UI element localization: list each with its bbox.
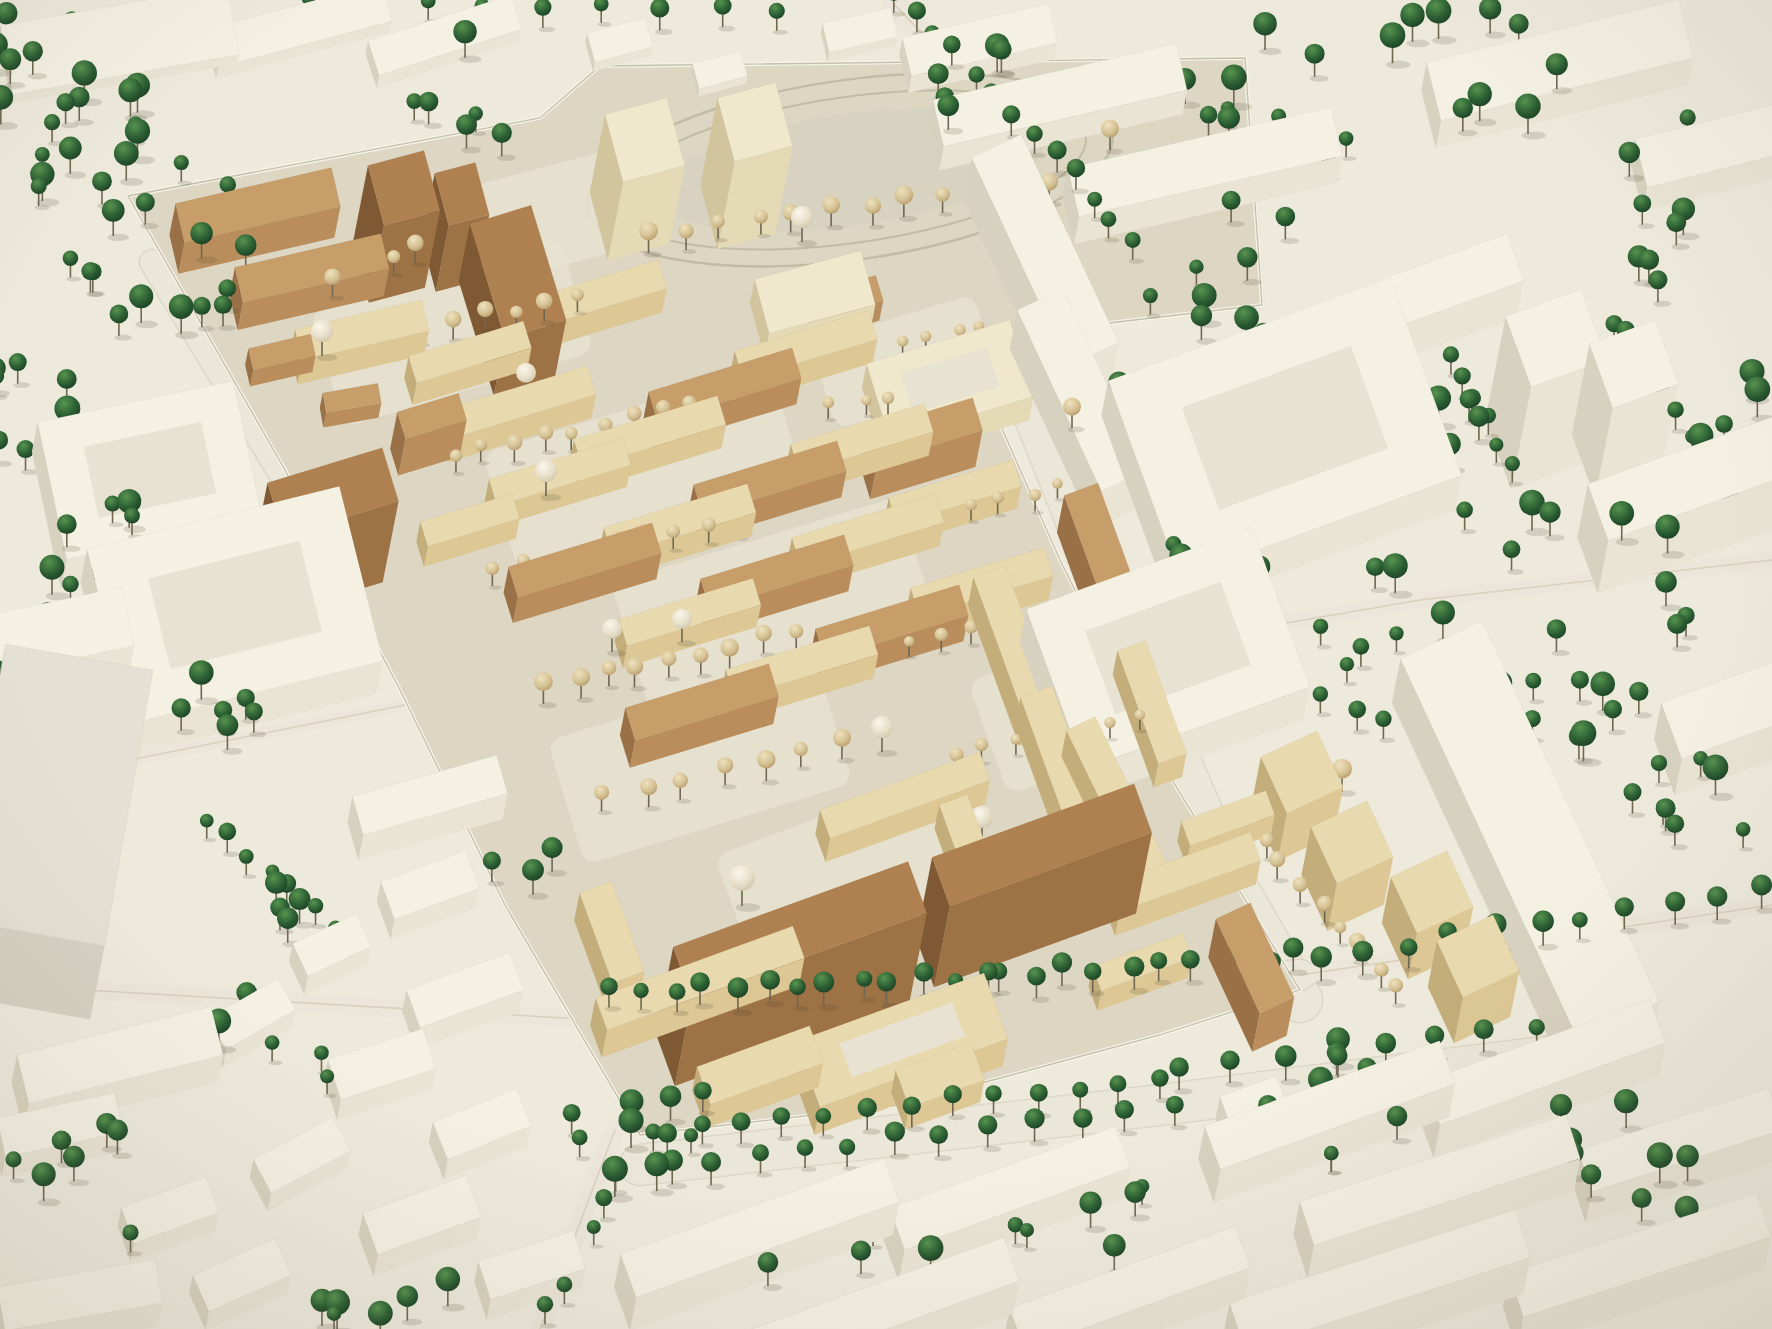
tree-shadow [607, 650, 626, 656]
tree-shadow [1682, 635, 1698, 641]
tree-green-sphere [797, 1139, 814, 1156]
tree-shadow [38, 1199, 61, 1207]
tree-green-sphere [542, 837, 563, 858]
tree-green-sphere [1474, 1019, 1494, 1039]
tree-green-sphere [59, 137, 82, 160]
tree-shadow [1057, 984, 1076, 991]
tree-beige-sphere [626, 657, 644, 675]
tree-green-sphere [1632, 1188, 1652, 1208]
tree-green-sphere [118, 78, 142, 102]
tree-shadow [943, 128, 963, 135]
tree-shadow [995, 513, 1007, 517]
tree-green-sphere [877, 972, 897, 992]
tree-green-sphere [1124, 1181, 1145, 1202]
tree-green-sphere [169, 294, 194, 319]
tree-beige-sphere [571, 288, 584, 301]
tree-green-sphere [56, 93, 74, 111]
tree-beige-sphere [565, 427, 578, 440]
tree-beige-sphere [324, 268, 341, 285]
tree-shadow [906, 656, 916, 659]
tree-green-sphere [62, 576, 79, 593]
tree-green-sphere [1680, 109, 1696, 125]
tree-beige-sphere [506, 434, 522, 450]
tree-green-sphere [1115, 1100, 1134, 1119]
tree-green-sphere [1283, 937, 1303, 957]
tree-shadow [1389, 591, 1413, 599]
tree-shadow [1522, 131, 1546, 139]
tree-green-sphere [572, 1129, 588, 1145]
tree-shadow [28, 73, 47, 80]
tree-green-sphere [1383, 553, 1408, 578]
tree-green-sphere [1166, 1096, 1184, 1114]
tree-green-sphere [1375, 711, 1391, 727]
tree-shadow [102, 1146, 122, 1153]
tree-green-sphere [556, 1276, 572, 1292]
tree-shadow [1458, 130, 1477, 137]
tree-green-sphere [1651, 755, 1667, 771]
tree-shadow [1545, 534, 1565, 541]
tree-shadow [109, 522, 124, 527]
tree-green-sphere [1389, 626, 1403, 640]
tree-shadow [1709, 793, 1733, 801]
tree-shadow [1029, 1140, 1048, 1146]
tree-beige-sphere [729, 865, 755, 891]
tree-beige-sphere [702, 517, 716, 531]
tree-green-sphere [1024, 1108, 1044, 1128]
tree-green-sphere [644, 1152, 668, 1176]
tree-shadow [605, 686, 619, 691]
tree-shadow [598, 810, 612, 815]
tree-shadow [819, 1004, 839, 1011]
tree-shadow [472, 131, 486, 136]
tree-green-sphere [522, 859, 544, 881]
tree-green-sphere [1328, 1046, 1347, 1065]
tree-green-sphere [1707, 886, 1727, 906]
tree-shadow [1552, 650, 1570, 656]
tree-shadow [576, 1156, 591, 1161]
tree-green-sphere [694, 1116, 711, 1133]
tree-green-sphere [694, 1082, 712, 1100]
tree-green-sphere [239, 849, 254, 864]
tree-shadow [1137, 730, 1147, 733]
tree-green-sphere [1736, 822, 1751, 837]
tree-shadow [497, 154, 516, 160]
tree-shadow [1661, 604, 1681, 611]
tree-shadow [112, 1152, 132, 1159]
tree-shadow [667, 1183, 687, 1190]
tree-shadow [1671, 429, 1687, 434]
tree-green-sphere [1353, 638, 1370, 655]
tree-beige-sphere [1101, 120, 1119, 138]
tree-green-sphere [1375, 1033, 1396, 1054]
tree-shadow [1586, 1196, 1605, 1202]
tree-shadow [1678, 233, 1700, 240]
tree-beige-sphere [672, 773, 687, 788]
tree-shadow [637, 1009, 652, 1014]
tree-shadow [665, 677, 679, 682]
tree-shadow [682, 249, 696, 254]
tree-green-sphere [190, 222, 213, 245]
tree-shadow [644, 252, 662, 258]
tree-green-sphere [63, 1146, 85, 1168]
tree-shadow [487, 881, 504, 887]
tree-shadow [1461, 529, 1477, 534]
tree-shadow [698, 1143, 714, 1148]
tree-shadow [13, 382, 30, 388]
tree-green-sphere [1460, 390, 1479, 409]
tree-beige-sphere [407, 235, 424, 252]
tree-beige-sphere [935, 628, 948, 641]
tree-shadow [1634, 712, 1652, 718]
tree-beige-sphere [572, 668, 590, 686]
tree-green-sphere [265, 871, 288, 894]
tree-green-sphere [856, 971, 872, 987]
tree-beige-sphere [311, 320, 333, 342]
tree-green-sphere [1633, 194, 1651, 212]
tree-shadow [1371, 587, 1389, 593]
tree-beige-sphere [789, 624, 803, 638]
tree-green-sphere [1703, 755, 1729, 781]
tree-green-sphere [218, 279, 236, 297]
tree-green-sphere [235, 234, 257, 256]
tree-green-sphere [928, 63, 949, 84]
tree-green-sphere [1143, 288, 1158, 303]
tree-shadow [673, 1011, 689, 1016]
tree-shadow [827, 225, 844, 231]
tree-green-sphere [944, 1085, 962, 1103]
tree-shadow [275, 929, 294, 935]
tree-green-sphere [1528, 1019, 1544, 1035]
tree-shadow [1296, 903, 1310, 908]
tree-green-sphere [1124, 956, 1144, 976]
tree-shadow [1637, 1220, 1656, 1226]
tree-green-sphere [314, 1045, 329, 1060]
tree-shadow [539, 27, 555, 33]
tree-green-sphere [789, 979, 806, 996]
tree-shadow [1379, 738, 1395, 743]
tree-shadow [196, 256, 217, 263]
tree-beige-sphere [755, 625, 772, 642]
tree-shadow [410, 120, 425, 125]
tree-green-sphere [124, 508, 140, 524]
tree-green-sphere [218, 823, 236, 841]
tree-shadow [203, 838, 216, 842]
tree-green-sphere [769, 3, 785, 19]
tree-shadow [983, 1146, 1001, 1152]
tree-shadow [1616, 538, 1639, 546]
tree-beige-sphere [474, 438, 487, 451]
tree-shadow [1174, 1088, 1193, 1094]
tree-shadow [600, 1217, 616, 1222]
tree-shadow [1259, 48, 1281, 56]
tree-shadow [1321, 922, 1336, 927]
tree-shadow [1032, 511, 1043, 515]
tree-shadow [777, 1136, 794, 1142]
tree-green-sphere [125, 118, 150, 143]
tree-green-sphere [1647, 1142, 1673, 1168]
tree-green-sphere [1571, 720, 1597, 746]
tree-beige-sphere [975, 738, 988, 751]
tree-shadow [1619, 928, 1637, 934]
tree-green-sphere [308, 898, 323, 913]
tree-shadow [762, 780, 779, 786]
tree-shadow [1107, 738, 1118, 742]
tree-green-sphere [1604, 700, 1623, 719]
tree-green-sphere [1615, 897, 1634, 916]
tree-shadow [176, 729, 194, 735]
tree-green-sphere [245, 702, 263, 720]
tree-shadow [870, 1245, 883, 1250]
tree-shadow [1392, 1003, 1406, 1008]
tree-green-sphere [991, 39, 1011, 59]
tree-shadow [62, 546, 81, 552]
tree-shadow [968, 644, 981, 648]
tree-shadow [459, 55, 481, 62]
tree-shadow [1242, 279, 1261, 286]
tree-green-sphere [1666, 212, 1686, 232]
tree-green-sphere [35, 147, 50, 162]
tree-shadow [934, 1155, 952, 1161]
tree-green-sphere [1400, 938, 1418, 956]
tree-green-sphere [419, 92, 439, 112]
tree-green-sphere [1581, 1164, 1601, 1184]
tree-green-sphere [1150, 952, 1167, 969]
tree-beige-sphere [445, 311, 462, 328]
tree-beige-sphere [865, 198, 881, 214]
tree-beige-sphere [666, 524, 680, 538]
tree-beige-sphere [791, 206, 813, 228]
tree-green-sphere [978, 1115, 997, 1134]
tree-beige-sphere [920, 331, 931, 342]
tree-green-sphere [114, 141, 139, 166]
tree-green-sphere [903, 1097, 921, 1115]
tree-shadow [424, 123, 443, 129]
tree-shadow [1653, 301, 1671, 307]
tree-shadow [736, 1142, 754, 1148]
tree-shadow [801, 1167, 817, 1172]
tree-beige-sphere [516, 363, 536, 383]
tree-green-sphere [1253, 12, 1277, 36]
tree-green-sphere [1324, 1146, 1338, 1160]
tree-green-sphere [456, 114, 477, 135]
tree-beige-sphere [477, 301, 493, 317]
tree-green-sphere [81, 262, 99, 280]
tree-shadow [35, 205, 50, 210]
tree-green-sphere [397, 1285, 418, 1306]
tree-beige-sphere [672, 609, 692, 629]
tree-green-sphere [968, 66, 984, 82]
tree-beige-sphere [627, 406, 642, 421]
tree-green-sphere [1084, 963, 1101, 980]
tree-green-sphere [660, 1085, 682, 1107]
tree-shadow [541, 494, 562, 501]
tree-green-sphere [368, 1301, 393, 1326]
tree-green-sphere [563, 1104, 581, 1122]
tree-green-sphere [1189, 260, 1203, 274]
tree-beige-sphere [822, 396, 834, 408]
tree-green-sphere [102, 199, 125, 222]
tree-beige-sphere [965, 498, 977, 510]
tree-shadow [899, 216, 917, 222]
tree-shadow [1012, 1243, 1027, 1248]
tree-shadow [1608, 729, 1626, 735]
tree-green-sphere [57, 369, 77, 389]
tree-green-sphere [1468, 406, 1489, 427]
tree-green-sphere [1020, 1223, 1034, 1237]
tree-beige-sphere [1269, 851, 1285, 867]
tree-shadow [135, 321, 158, 329]
tree-green-sphere [815, 1108, 831, 1124]
tree-shadow [1225, 1081, 1243, 1087]
tree-shadow [1342, 156, 1356, 161]
tree-shadow [317, 354, 338, 361]
tree-green-sphere [1629, 682, 1648, 701]
tree-green-sphere [483, 852, 501, 870]
tree-green-sphere [938, 95, 960, 117]
tree-shadow [1529, 699, 1544, 704]
tree-green-sphere [701, 1152, 721, 1172]
tree-shadow [1088, 991, 1105, 997]
tree-green-sphere [690, 972, 710, 992]
tree-green-sphere [1072, 1082, 1088, 1098]
tree-green-sphere [1623, 783, 1641, 801]
tree-green-sphere [602, 1156, 628, 1182]
tree-green-sphere [1443, 346, 1459, 362]
tree-shadow [461, 147, 481, 154]
tree-shadow [223, 851, 240, 857]
tree-green-sphere [1665, 892, 1685, 912]
tree-beige-sphere [1374, 962, 1388, 976]
tree-green-sphere [1151, 1069, 1168, 1086]
tree-green-sphere [31, 178, 47, 194]
tree-green-sphere [32, 1162, 56, 1186]
tree-green-sphere [1200, 106, 1218, 124]
tree-shadow [1106, 149, 1123, 155]
tree-beige-sphere [904, 636, 914, 646]
tree-beige-sphere [661, 651, 676, 666]
tree-shadow [677, 640, 696, 646]
tree-shadow [1661, 551, 1684, 559]
tree-shadow [1575, 700, 1592, 706]
tree-green-sphere [436, 1267, 461, 1292]
tree-shadow [1343, 682, 1357, 687]
tree-shadow [1638, 223, 1655, 229]
tree-shadow [1628, 812, 1645, 818]
tree-beige-sphere [1104, 717, 1115, 728]
tree-shadow [1432, 36, 1456, 44]
tree-shadow [756, 1172, 772, 1177]
tree-beige-sphere [935, 187, 950, 202]
tree-shadow [560, 1303, 575, 1308]
tree-green-sphere [0, 48, 21, 70]
tree-shadow [453, 472, 465, 476]
tree-beige-sphere [757, 750, 775, 768]
tree-shadow [670, 548, 683, 552]
tree-beige-sphere [711, 214, 725, 228]
tree-shadow [862, 1129, 880, 1135]
tree-shadow [1068, 427, 1085, 433]
tree-green-sphere [1572, 912, 1588, 928]
tree-beige-sphere [602, 660, 617, 675]
tree-shadow [249, 731, 266, 737]
tree-shadow [856, 1272, 875, 1278]
tree-beige-sphere [1317, 896, 1333, 912]
tree-shadow [939, 212, 953, 217]
tree-beige-sphere [693, 648, 708, 663]
tree-beige-sphere [486, 562, 500, 576]
tree-green-sphere [492, 123, 512, 143]
tree-shadow [1712, 918, 1731, 925]
tree-shadow [825, 418, 836, 422]
tree-green-sphere [773, 1107, 791, 1125]
tree-green-sphere [1571, 671, 1589, 689]
tree-green-sphere [1073, 1108, 1092, 1127]
tree-green-sphere [1715, 415, 1733, 433]
tree-shadow [1551, 87, 1572, 94]
tree-beige-sphere [639, 221, 658, 240]
tree-green-sphere [600, 977, 618, 995]
tree-shadow [1138, 1204, 1152, 1209]
tree-shadow [61, 122, 78, 128]
tree-green-sphere [1311, 946, 1332, 967]
tree-shadow [890, 1153, 909, 1160]
tree-green-sphere [1619, 142, 1640, 163]
tree-shadow [819, 1135, 834, 1140]
tree-green-sphere [732, 1112, 751, 1131]
tree-green-sphere [587, 1220, 601, 1234]
tree-shadow [705, 542, 719, 547]
tree-shadow [1328, 1171, 1342, 1176]
tree-green-sphere [1609, 501, 1634, 526]
tree-green-sphere [1431, 600, 1455, 624]
tree-green-sphere [1550, 1094, 1572, 1116]
tree-shadow [1104, 238, 1119, 243]
tree-shadow [765, 1001, 784, 1007]
tree-shadow [1406, 40, 1429, 48]
tree-shadow [65, 172, 87, 179]
tree-shadow [1624, 175, 1644, 182]
tree-green-sphere [1079, 1192, 1101, 1214]
tree-green-sphere [1614, 1089, 1638, 1113]
tree-beige-sphere [1260, 833, 1274, 847]
tree-green-sphere [193, 297, 211, 315]
tree-green-sphere [1505, 456, 1520, 471]
tree-shadow [542, 450, 556, 455]
tree-green-sphere [1453, 98, 1473, 118]
tree-green-sphere [320, 1069, 334, 1083]
tree-shadow [757, 234, 770, 238]
tree-green-sphere [44, 114, 60, 130]
tree-shadow [1288, 969, 1307, 976]
tree-shadow [1671, 244, 1690, 250]
tree-shadow [1154, 980, 1170, 985]
tree-shadow [968, 520, 979, 524]
tree-shadow [1682, 1179, 1703, 1186]
tree-shadow [222, 748, 243, 755]
tree-shadow [126, 1251, 141, 1256]
tree-beige-sphere [510, 306, 522, 318]
tree-green-sphere [1348, 701, 1366, 719]
tree-shadow [1337, 943, 1349, 947]
tree-green-sphere [1305, 44, 1325, 64]
tree-shadow [1030, 153, 1046, 158]
tree-green-sphere [110, 305, 129, 324]
tree-shadow [706, 1184, 725, 1190]
tree-shadow [1130, 1215, 1150, 1222]
tree-green-sphere [1048, 141, 1067, 160]
tree-green-sphere [265, 1035, 280, 1050]
tree-green-sphere [885, 1121, 905, 1141]
